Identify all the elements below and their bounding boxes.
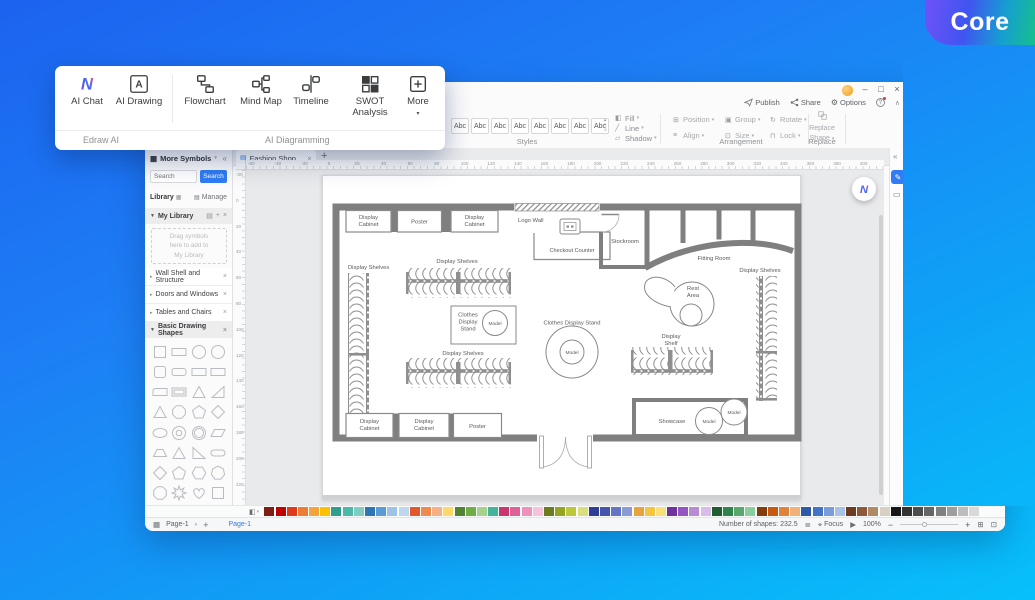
shape-star8[interactable] xyxy=(170,483,190,503)
color-swatch[interactable] xyxy=(645,507,655,516)
poster[interactable]: Poster xyxy=(398,211,442,233)
display-cabinet[interactable]: Display Cabinet xyxy=(451,211,498,233)
ruler-number: 80 xyxy=(434,161,439,166)
fill-color-tool[interactable]: ◧▾ xyxy=(249,508,259,516)
rotate-icon: ↻ xyxy=(770,116,778,124)
wall-stub xyxy=(442,204,451,232)
ruler-number: 0 xyxy=(328,161,331,166)
color-swatch[interactable] xyxy=(924,507,934,516)
color-swatch[interactable] xyxy=(331,507,341,516)
layers-icon[interactable]: ≣ xyxy=(805,520,811,529)
library-info-icon: ▦ xyxy=(176,194,182,201)
shape-heart[interactable] xyxy=(189,483,209,503)
ruler-number: 200 xyxy=(236,456,244,461)
ribbon-separator xyxy=(660,114,661,144)
color-swatch[interactable] xyxy=(712,507,722,516)
shadow-button[interactable]: ▱Shadow▾ xyxy=(615,133,657,143)
color-swatch[interactable] xyxy=(421,507,431,516)
svg-text:Model: Model xyxy=(702,419,715,425)
chevron-down-icon: ▾ xyxy=(637,115,640,121)
maximize-button[interactable]: □ xyxy=(874,83,888,95)
ai-diagramming-group-label: AI Diagramming xyxy=(265,135,330,145)
shape-circle[interactable] xyxy=(189,342,209,362)
section-label: Tables and Chairs xyxy=(156,309,212,316)
close-section-icon[interactable]: × xyxy=(223,327,227,334)
clothes-display-stand-rect[interactable]: Clothes Display Stand Model xyxy=(451,306,516,344)
section-label: Wall Shell and Structure xyxy=(156,270,220,284)
rest-area[interactable]: Rest Area xyxy=(645,277,714,326)
chevron-right-icon: ▸ xyxy=(150,310,153,316)
color-swatch[interactable] xyxy=(734,507,744,516)
color-swatch[interactable] xyxy=(902,507,912,516)
fit-page-icon[interactable]: ⊡ xyxy=(991,520,997,529)
color-swatch[interactable] xyxy=(589,507,599,516)
blue-gradient-panel xyxy=(903,0,1035,506)
close-section-icon[interactable]: × xyxy=(223,291,227,298)
style-sample[interactable]: Abc xyxy=(571,118,589,134)
color-swatch[interactable] xyxy=(555,507,565,516)
color-swatch[interactable] xyxy=(287,507,297,516)
ruler-number: 240 xyxy=(647,161,655,166)
color-swatch[interactable] xyxy=(410,507,420,516)
color-swatch[interactable] xyxy=(768,507,778,516)
my-library-header[interactable]: ▼ My Library ▤ + × xyxy=(145,208,232,224)
ruler-number: 80 xyxy=(236,301,241,306)
shape-pentagon[interactable] xyxy=(189,402,209,422)
ruler-number: 100 xyxy=(236,327,244,332)
color-swatch[interactable] xyxy=(533,507,543,516)
format-group: ◧Fill▾ ╱Line▾ ▱Shadow▾ xyxy=(615,113,657,143)
shape-rect[interactable] xyxy=(189,362,209,382)
swot-analysis-icon xyxy=(359,73,381,95)
ruler-number: 180 xyxy=(236,430,244,435)
color-swatch[interactable] xyxy=(667,507,677,516)
color-swatch[interactable] xyxy=(678,507,688,516)
svg-text:Display: Display xyxy=(465,215,484,221)
color-swatch[interactable] xyxy=(264,507,274,516)
logo-wall[interactable] xyxy=(515,204,599,212)
fill-icon: ◧ xyxy=(615,114,623,122)
shape-tri-right[interactable] xyxy=(209,382,229,402)
color-swatch[interactable] xyxy=(868,507,878,516)
timeline-icon xyxy=(300,73,322,95)
checkout-counter[interactable] xyxy=(534,232,610,260)
user-avatar[interactable] xyxy=(842,85,853,96)
color-swatch[interactable] xyxy=(857,507,867,516)
display-cabinet[interactable]: Display Cabinet xyxy=(346,211,391,233)
collapse-right-panel-icon[interactable]: « xyxy=(893,152,897,161)
color-swatch[interactable] xyxy=(510,507,520,516)
ruler-number: 400 xyxy=(860,161,868,166)
replace-group-label: Replace xyxy=(800,137,844,146)
chevron-right-icon: ▸ xyxy=(150,292,153,298)
shape-triangle[interactable] xyxy=(189,382,209,402)
color-swatch[interactable] xyxy=(880,507,890,516)
shape-triangle[interactable] xyxy=(150,402,170,422)
svg-text:Model: Model xyxy=(727,410,740,416)
color-swatch[interactable] xyxy=(455,507,465,516)
color-swatch[interactable] xyxy=(611,507,621,516)
svg-text:Model: Model xyxy=(565,350,578,356)
color-swatch[interactable] xyxy=(544,507,554,516)
color-swatch[interactable] xyxy=(432,507,442,516)
page-selector[interactable]: Page-1 xyxy=(166,521,189,528)
horizontal-scrollbar[interactable] xyxy=(322,495,801,499)
svg-text:Stand: Stand xyxy=(460,327,475,333)
shape-rect-frame[interactable] xyxy=(170,382,190,402)
color-swatch[interactable] xyxy=(499,507,509,516)
shape-octagon[interactable] xyxy=(150,483,170,503)
more-shapes-icon xyxy=(407,73,429,95)
ai-chat-button[interactable]: N AI Chat xyxy=(67,73,107,108)
svg-text:Poster: Poster xyxy=(469,424,486,430)
ai-drawing-icon: A xyxy=(128,73,150,95)
pages-icon[interactable]: ▦ xyxy=(153,520,160,529)
quick-action-bar: Publish Share ⚙ Options ? ∧ xyxy=(744,96,900,109)
chevron-down-icon: ▾ xyxy=(712,117,715,123)
color-swatch[interactable] xyxy=(824,507,834,516)
group-button[interactable]: ▣Group▾ xyxy=(725,113,770,126)
color-swatch[interactable] xyxy=(578,507,588,516)
shape-triangle[interactable] xyxy=(170,443,190,463)
shape-rect-corner[interactable] xyxy=(150,382,170,402)
page-tab[interactable]: Page-1 xyxy=(228,521,251,528)
ruler-number: -60 xyxy=(248,161,255,166)
vertical-scrollbar[interactable] xyxy=(879,215,883,495)
color-swatch[interactable] xyxy=(488,507,498,516)
color-swatch[interactable] xyxy=(320,507,330,516)
focus-icon: ⌖ xyxy=(818,520,822,530)
shape-ellipse[interactable] xyxy=(150,423,170,443)
color-swatch[interactable] xyxy=(801,507,811,516)
drop-hint-line: Drag symbols xyxy=(170,232,209,241)
edraw-ai-group-label: Edraw AI xyxy=(83,135,119,145)
ruler-number: 320 xyxy=(753,161,761,166)
ruler-number: 160 xyxy=(541,161,549,166)
ribbon-separator xyxy=(845,114,846,144)
color-swatch[interactable] xyxy=(399,507,409,516)
clothes-rack-horizontal[interactable] xyxy=(406,358,511,388)
ruler-number: 380 xyxy=(833,161,841,166)
ruler-number: 120 xyxy=(236,353,244,358)
shape-circle[interactable] xyxy=(209,342,229,362)
shape-octagon[interactable] xyxy=(170,402,190,422)
arr-label: Position xyxy=(683,115,710,124)
svg-text:Cabinet: Cabinet xyxy=(414,426,434,432)
minimize-button[interactable]: – xyxy=(858,83,872,95)
color-swatch[interactable] xyxy=(600,507,610,516)
add-page-button[interactable]: + xyxy=(203,520,208,530)
display-shelves-label: Display Shelves xyxy=(436,259,477,265)
color-swatch[interactable] xyxy=(790,507,800,516)
view-mode-icon[interactable]: ▤ xyxy=(206,212,213,220)
color-swatch[interactable] xyxy=(891,507,901,516)
ruler-number: 20 xyxy=(236,224,241,229)
color-swatch[interactable] xyxy=(634,507,644,516)
zoom-slider-knob[interactable] xyxy=(922,522,927,527)
search-button[interactable]: Search xyxy=(200,170,227,183)
collapse-ribbon-icon[interactable]: ∧ xyxy=(895,99,900,107)
flowchart-button[interactable]: Flowchart xyxy=(178,73,232,108)
ruler-number: -40 xyxy=(275,161,282,166)
line-button[interactable]: ╱Line▾ xyxy=(615,123,657,133)
svg-text:Area: Area xyxy=(687,293,700,299)
svg-text:A: A xyxy=(135,80,143,91)
sidebar-section-wall-shell-and-structure[interactable]: ▸Wall Shell and Structure× xyxy=(145,268,232,286)
edraw-ai-logo-icon: N xyxy=(855,180,873,198)
shape-donut[interactable] xyxy=(170,423,190,443)
ruler-number: 40 xyxy=(236,249,241,254)
color-swatch[interactable] xyxy=(387,507,397,516)
close-library-icon[interactable]: × xyxy=(223,212,227,220)
shape-hexagon[interactable] xyxy=(189,463,209,483)
clothes-display-stand-circle[interactable]: Model xyxy=(546,326,598,378)
fullscreen-icon[interactable]: ⊞ xyxy=(977,520,983,529)
options-button[interactable]: ⚙ Options xyxy=(831,98,866,107)
section-label: Doors and Windows xyxy=(156,291,219,298)
color-swatch[interactable] xyxy=(477,507,487,516)
drawing-canvas[interactable]: Logo Wall Display Cabinet Poster xyxy=(246,170,884,505)
swot-analysis-button[interactable]: SWOT Analysis xyxy=(344,73,396,119)
color-swatch[interactable] xyxy=(779,507,789,516)
style-sample[interactable]: Abc xyxy=(491,118,509,134)
close-section-icon[interactable]: × xyxy=(223,273,227,280)
arr-label: Group xyxy=(735,115,756,124)
shape-ring[interactable] xyxy=(189,423,209,443)
sidebar-section-doors-and-windows[interactable]: ▸Doors and Windows× xyxy=(145,286,232,304)
core-badge-label: Core xyxy=(951,8,1010,37)
symbol-search: Search xyxy=(145,170,232,183)
zoom-level[interactable]: 100% xyxy=(863,521,881,528)
toolbar-divider xyxy=(172,75,173,123)
style-sample[interactable]: Abc xyxy=(511,118,529,134)
sidebar-section-tables-and-chairs[interactable]: ▸Tables and Chairs× xyxy=(145,304,232,322)
color-swatch[interactable] xyxy=(757,507,767,516)
showcase[interactable]: Showcase Model Model xyxy=(634,399,747,436)
share-button[interactable]: Share xyxy=(790,98,821,107)
share-icon xyxy=(790,98,799,107)
shape-tri-right2[interactable] xyxy=(189,443,209,463)
style-sample[interactable]: Abc xyxy=(531,118,549,134)
close-section-icon[interactable]: × xyxy=(223,309,227,316)
style-sample[interactable]: Abc xyxy=(551,118,569,134)
color-swatch[interactable] xyxy=(354,507,364,516)
color-palette-bar: ◧▾ xyxy=(145,505,1005,517)
logo-wall-label: Logo Wall xyxy=(518,218,544,224)
library-label: Library xyxy=(150,194,174,201)
wall-stub xyxy=(393,414,399,439)
display-shelf-label: Display xyxy=(661,334,680,340)
color-swatch[interactable] xyxy=(745,507,755,516)
ruler-number: 280 xyxy=(700,161,708,166)
ai-drawing-button[interactable]: A AI Drawing xyxy=(113,73,165,108)
chevron-down-icon: ▾ xyxy=(214,155,217,161)
color-swatch[interactable] xyxy=(913,507,923,516)
ruler-number: 140 xyxy=(236,378,244,383)
stockroom-label: Stockroom xyxy=(611,239,639,245)
color-swatch[interactable] xyxy=(656,507,666,516)
zoom-out-button[interactable]: − xyxy=(888,520,893,530)
color-swatch[interactable] xyxy=(689,507,699,516)
drop-hint-line: My Library xyxy=(174,251,203,260)
more-button[interactable]: More ▾ xyxy=(401,73,435,117)
focus-button[interactable]: ⌖ Focus xyxy=(818,520,843,530)
ruler-number: -20 xyxy=(236,172,243,177)
display-shelves-label: Display Shelves xyxy=(348,265,389,271)
library-panel-icon: ▦ xyxy=(150,154,157,163)
color-swatch[interactable] xyxy=(309,507,319,516)
chevron-down-icon: ▼ xyxy=(150,327,155,333)
library-row: Library ▦ ▤Manage xyxy=(145,190,232,204)
ruler-number: 0 xyxy=(236,198,239,203)
color-swatch[interactable] xyxy=(701,507,711,516)
shape-rect[interactable] xyxy=(170,342,190,362)
clothes-rack-horizontal[interactable] xyxy=(406,268,511,298)
style-sample[interactable]: Abc xyxy=(451,118,469,134)
ruler-number: 20 xyxy=(354,161,359,166)
chevron-right-icon: ▸ xyxy=(150,274,153,280)
arr-label: Rotate xyxy=(780,115,802,124)
ai-assistant-button[interactable]: N xyxy=(852,177,876,201)
color-swatch[interactable] xyxy=(958,507,968,516)
mind-map-icon xyxy=(250,73,272,95)
floorplan-drawing[interactable]: Logo Wall Display Cabinet Poster xyxy=(323,176,802,501)
manage-button[interactable]: ▤Manage xyxy=(194,194,227,201)
ruler-number: -20 xyxy=(301,161,308,166)
shape-square[interactable] xyxy=(209,483,229,503)
svg-text:Poster: Poster xyxy=(411,220,428,226)
format-paint-icon: ✎ xyxy=(895,173,902,182)
ruler-number: 360 xyxy=(807,161,815,166)
toolbar-footer: Edraw AI AI Diagramming xyxy=(55,130,445,150)
color-swatch[interactable] xyxy=(343,507,353,516)
fitting-room-label: Fitting Room xyxy=(698,256,731,262)
color-swatch[interactable] xyxy=(846,507,856,516)
chevron-down-icon: ▾ xyxy=(654,135,657,141)
zoom-in-button[interactable]: + xyxy=(965,520,970,530)
add-library-icon[interactable]: + xyxy=(216,212,220,220)
promo-screenshot: { "core_badge": { "label": "Core" }, "ov… xyxy=(0,0,1035,600)
drawing-page[interactable]: Logo Wall Display Cabinet Poster xyxy=(322,175,801,500)
color-swatch[interactable] xyxy=(298,507,308,516)
shape-rect[interactable] xyxy=(209,362,229,382)
core-badge: Core xyxy=(925,0,1035,45)
color-swatch[interactable] xyxy=(622,507,632,516)
shape-pentagon[interactable] xyxy=(170,463,190,483)
ruler-number: 200 xyxy=(594,161,602,166)
shape-parallelogram[interactable] xyxy=(209,423,229,443)
color-swatch[interactable] xyxy=(947,507,957,516)
svg-text:Cabinet: Cabinet xyxy=(360,426,380,432)
fill-button[interactable]: ◧Fill▾ xyxy=(615,113,657,123)
mind-map-button[interactable]: Mind Map xyxy=(240,73,282,108)
color-swatch[interactable] xyxy=(813,507,823,516)
display-shelves-label: Display Shelves xyxy=(442,351,483,357)
shape-pill[interactable] xyxy=(209,443,229,463)
close-button[interactable]: × xyxy=(890,83,904,95)
clothes-rack-horizontal[interactable] xyxy=(631,347,713,375)
line-icon: ╱ xyxy=(615,124,623,132)
shape-diamond[interactable] xyxy=(209,402,229,422)
slideshow-icon[interactable]: ▭ xyxy=(893,190,901,199)
help-button[interactable]: ? xyxy=(876,98,885,107)
cash-register[interactable] xyxy=(560,219,580,234)
styles-group-label: Styles xyxy=(451,137,603,146)
chevron-down-icon: ▾ xyxy=(416,110,419,117)
color-swatch[interactable] xyxy=(835,507,845,516)
shape-trapezoid[interactable] xyxy=(150,443,170,463)
chevron-down-icon: ▾ xyxy=(195,522,198,528)
position-icon: ⊞ xyxy=(673,116,681,124)
shape-heptagon[interactable] xyxy=(209,463,229,483)
wall-stub xyxy=(391,204,398,232)
display-cabinet[interactable]: Display Cabinet xyxy=(346,414,393,438)
svg-text:N: N xyxy=(860,184,869,196)
color-swatch[interactable] xyxy=(566,507,576,516)
edraw-ai-logo-icon: N xyxy=(76,73,98,95)
color-swatch[interactable] xyxy=(936,507,946,516)
library-drop-area[interactable]: Drag symbols here to add to My Library xyxy=(151,228,227,264)
publish-button[interactable]: Publish xyxy=(744,98,780,107)
basic-shapes-header[interactable]: ▼ Basic Drawing Shapes × xyxy=(145,322,232,338)
zoom-slider[interactable] xyxy=(900,524,958,525)
clothes-rack-vertical[interactable] xyxy=(756,276,777,401)
ruler-number: 120 xyxy=(487,161,495,166)
sidebar-header[interactable]: ▦ More Symbols ▾ « xyxy=(145,148,232,168)
svg-text:N: N xyxy=(81,76,94,94)
chevron-down-icon: ▾ xyxy=(641,125,644,131)
color-swatch[interactable] xyxy=(276,507,286,516)
svg-text:Rest: Rest xyxy=(687,286,699,292)
shape-rect-round[interactable] xyxy=(170,362,190,382)
color-swatch[interactable] xyxy=(365,507,375,516)
shape-square[interactable] xyxy=(150,342,170,362)
svg-text:Display: Display xyxy=(458,320,477,326)
timeline-button[interactable]: Timeline xyxy=(285,73,337,108)
ruler-number: 60 xyxy=(236,275,241,280)
color-swatch[interactable] xyxy=(443,507,453,516)
style-sample[interactable]: Abc xyxy=(471,118,489,134)
ruler-number: 300 xyxy=(727,161,735,166)
ruler-corner xyxy=(236,160,246,170)
color-swatch[interactable] xyxy=(466,507,476,516)
status-bar: ▦ Page-1 ▾ + Page-1 Number of shapes: 23… xyxy=(145,517,1005,531)
display-cabinet[interactable]: Display Cabinet xyxy=(399,414,449,438)
collapse-panel-icon[interactable]: « xyxy=(223,154,227,163)
position-button[interactable]: ⊞Position▾ xyxy=(673,113,725,126)
search-input[interactable] xyxy=(150,170,197,183)
horizontal-ruler: -60-40-200204060801001201401601802002202… xyxy=(246,160,884,170)
drop-hint-line: here to add to xyxy=(170,241,209,250)
shape-square-round[interactable] xyxy=(150,362,170,382)
presentation-icon[interactable]: ▶ xyxy=(850,520,856,529)
style-gallery-scroll[interactable]: ▴▾≡ xyxy=(604,118,607,133)
color-swatches xyxy=(264,507,979,516)
color-swatch[interactable] xyxy=(522,507,532,516)
poster[interactable]: Poster xyxy=(454,414,502,438)
svg-text:Cabinet: Cabinet xyxy=(359,222,379,228)
stockroom-walls[interactable] xyxy=(599,232,649,267)
paint-bucket-icon: ◧ xyxy=(249,508,256,516)
color-swatch[interactable] xyxy=(723,507,733,516)
color-swatch[interactable] xyxy=(969,507,979,516)
shape-diamond[interactable] xyxy=(150,463,170,483)
color-swatch[interactable] xyxy=(376,507,386,516)
wall-stub xyxy=(449,414,454,439)
ruler-number: 160 xyxy=(236,404,244,409)
replace-shape-icon xyxy=(818,111,827,120)
ruler-number: 340 xyxy=(780,161,788,166)
